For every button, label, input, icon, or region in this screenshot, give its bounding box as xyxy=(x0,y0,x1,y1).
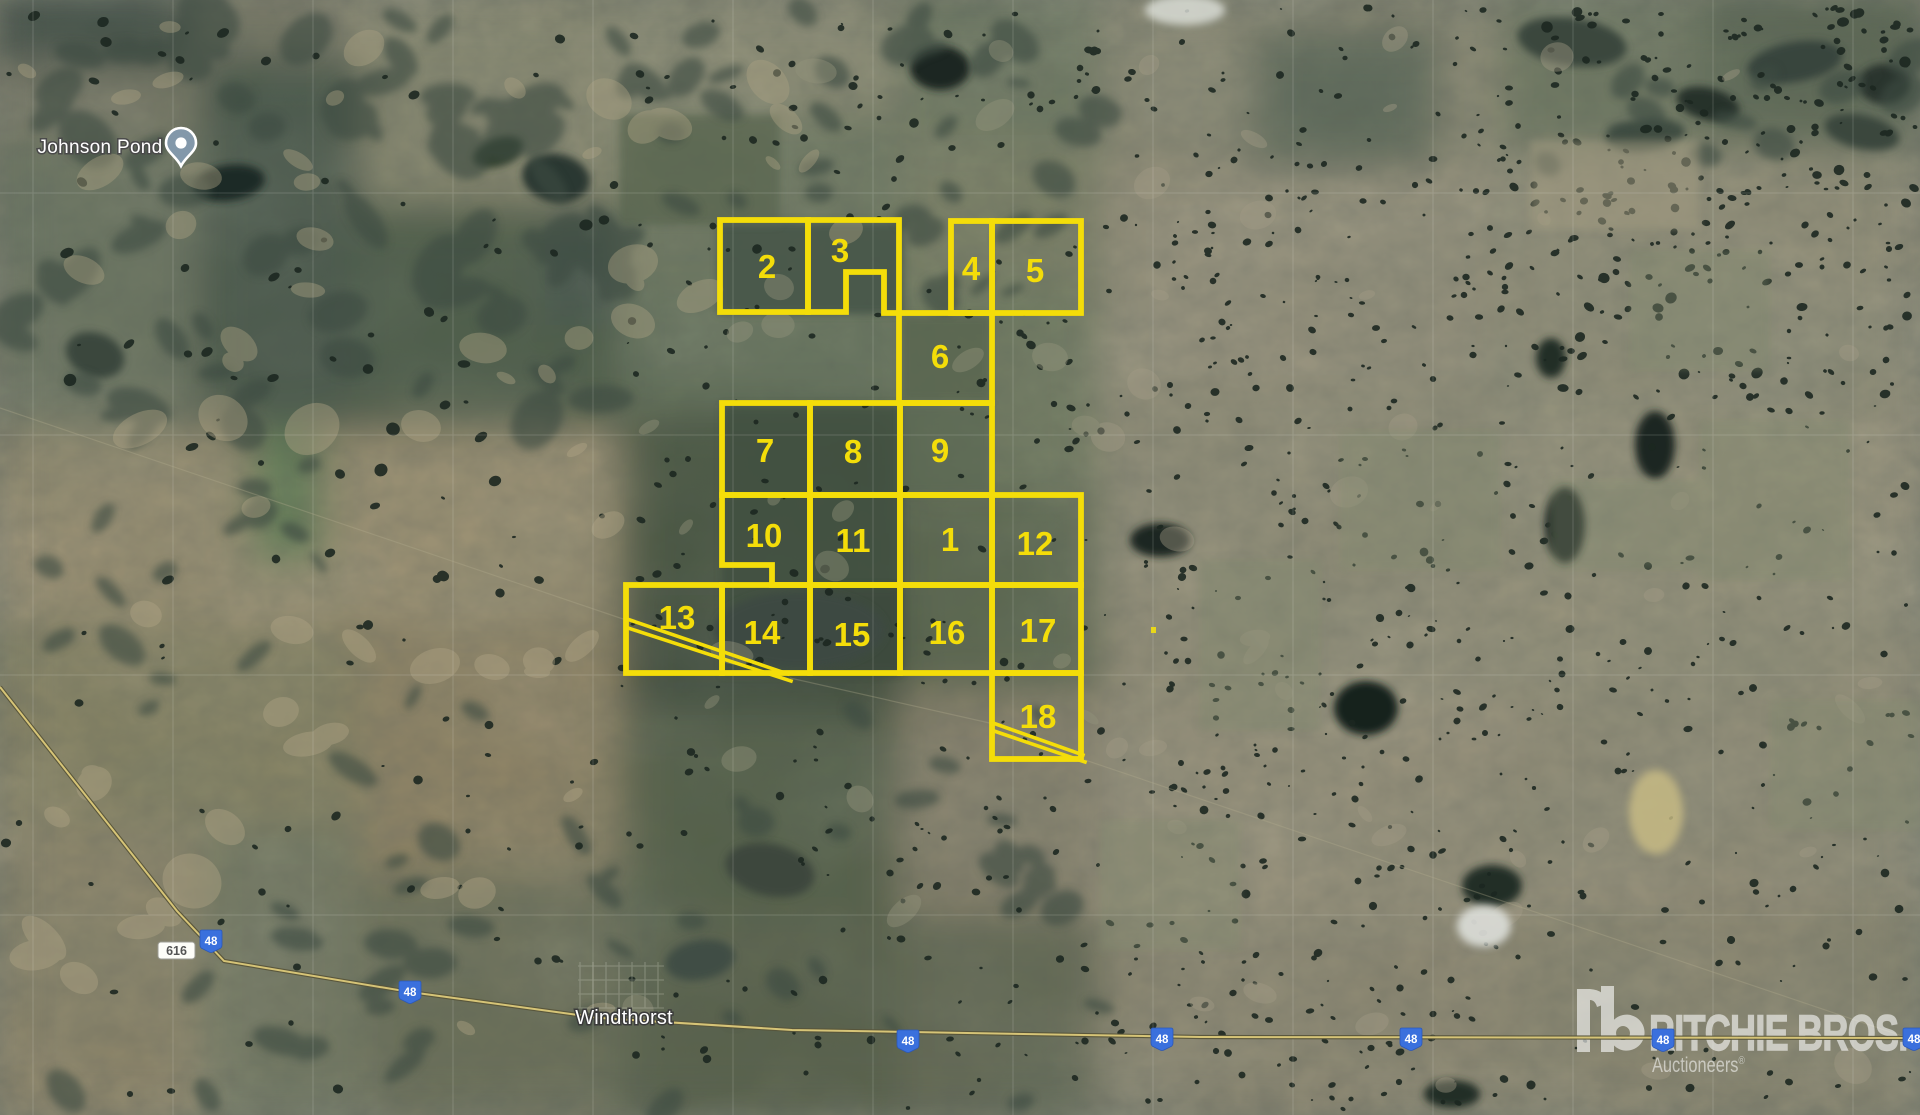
svg-text:48: 48 xyxy=(1156,1034,1169,1046)
svg-text:15: 15 xyxy=(834,616,871,653)
svg-text:10: 10 xyxy=(746,517,783,554)
svg-text:8: 8 xyxy=(844,433,862,470)
svg-text:Johnson Pond: Johnson Pond xyxy=(37,137,162,158)
svg-text:4: 4 xyxy=(962,250,981,287)
svg-text:3: 3 xyxy=(831,232,849,269)
svg-text:7: 7 xyxy=(756,432,774,469)
svg-text:48: 48 xyxy=(404,987,417,999)
svg-text:616: 616 xyxy=(166,944,187,958)
svg-text:48: 48 xyxy=(1908,1034,1920,1046)
svg-text:16: 16 xyxy=(929,614,966,651)
svg-text:9: 9 xyxy=(931,432,949,469)
svg-text:48: 48 xyxy=(1405,1034,1418,1046)
svg-text:48: 48 xyxy=(1657,1035,1670,1047)
svg-text:5: 5 xyxy=(1026,252,1044,289)
svg-text:17: 17 xyxy=(1020,612,1057,649)
svg-text:12: 12 xyxy=(1017,525,1054,562)
svg-text:48: 48 xyxy=(902,1036,915,1048)
svg-text:1: 1 xyxy=(941,521,959,558)
svg-text:14: 14 xyxy=(744,614,781,651)
svg-text:2: 2 xyxy=(758,248,776,285)
svg-text:11: 11 xyxy=(836,522,871,559)
svg-text:Auctioneers®: Auctioneers® xyxy=(1652,1053,1745,1076)
svg-text:48: 48 xyxy=(205,936,218,948)
svg-text:18: 18 xyxy=(1020,698,1057,735)
svg-text:Windthorst: Windthorst xyxy=(575,1007,673,1029)
svg-text:6: 6 xyxy=(931,338,949,375)
